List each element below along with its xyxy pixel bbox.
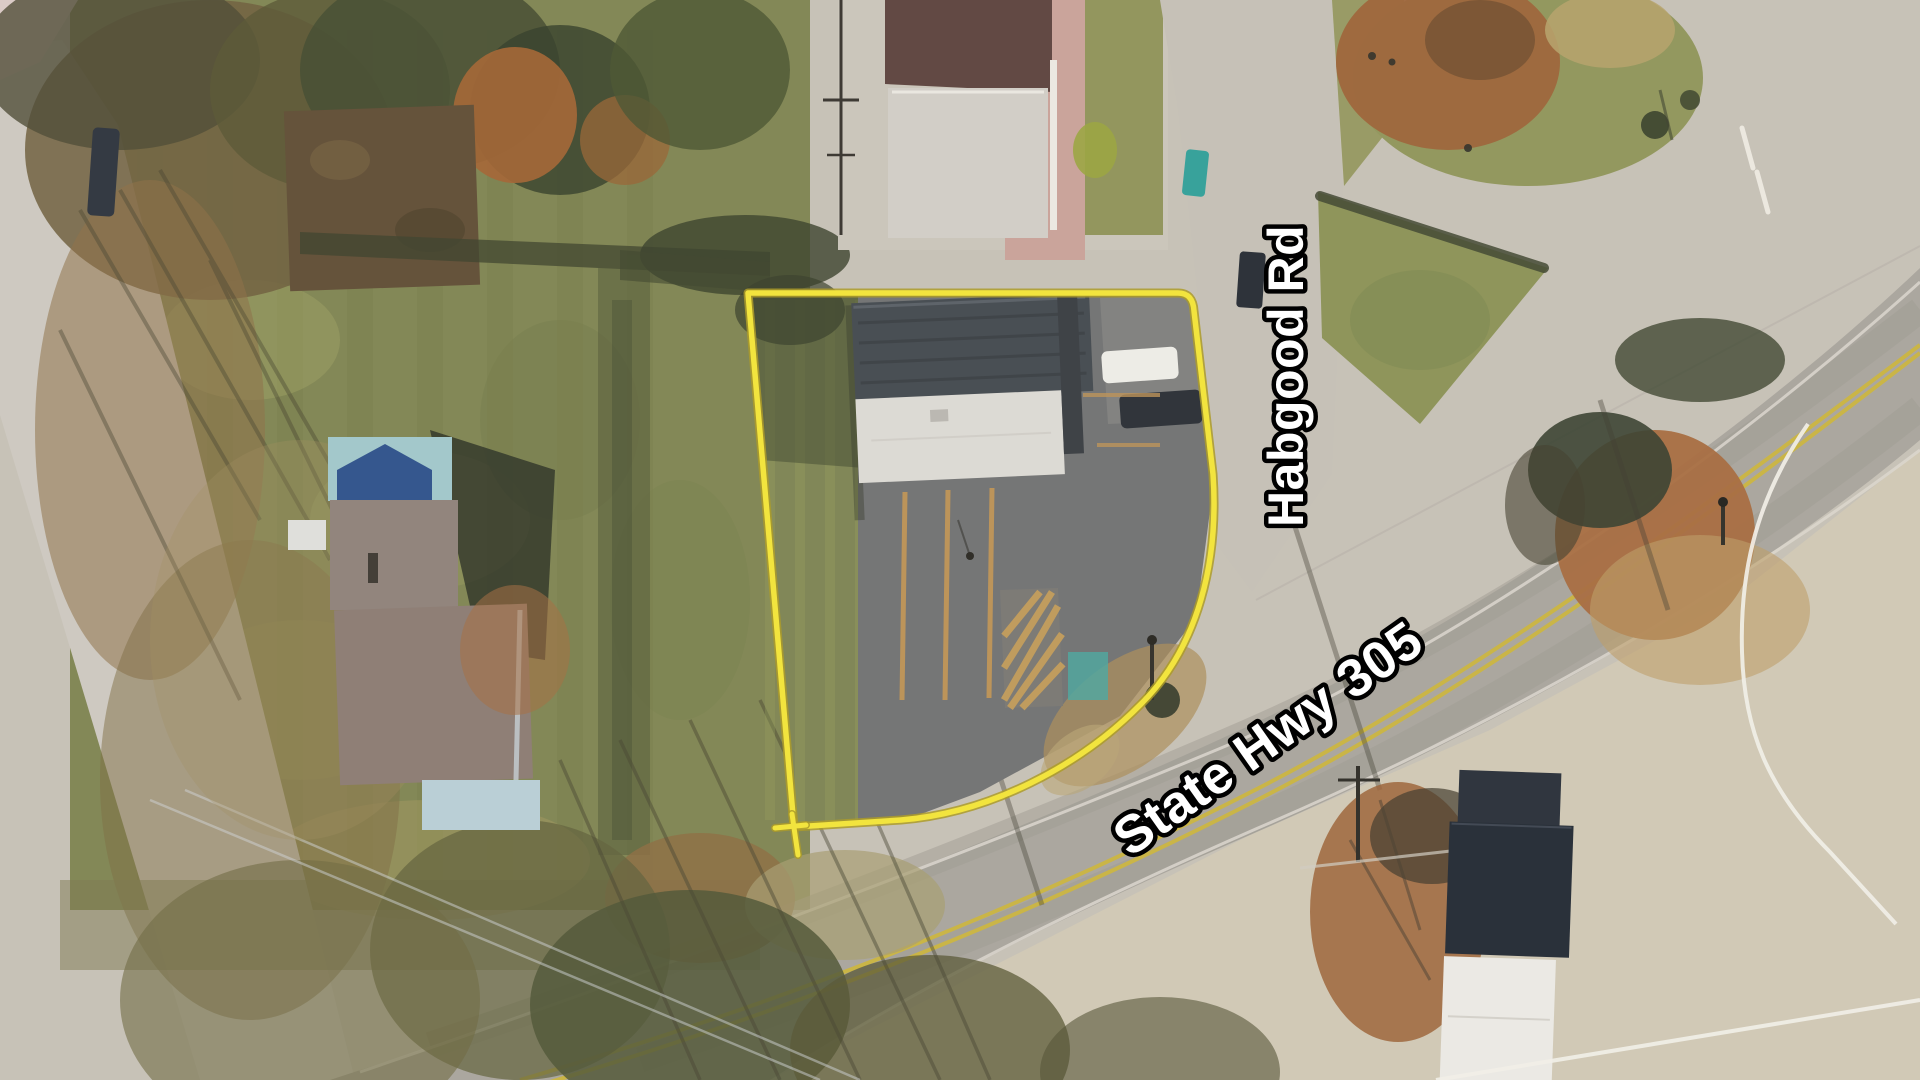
aerial-map-canvas: Habgood Rd State Hwy 305 (0, 0, 1920, 1080)
haze-overlay (0, 0, 1920, 1080)
habgood-rd-label: Habgood Rd (1258, 225, 1314, 527)
aerial-map-viewport: Habgood Rd State Hwy 305 (0, 0, 1920, 1080)
